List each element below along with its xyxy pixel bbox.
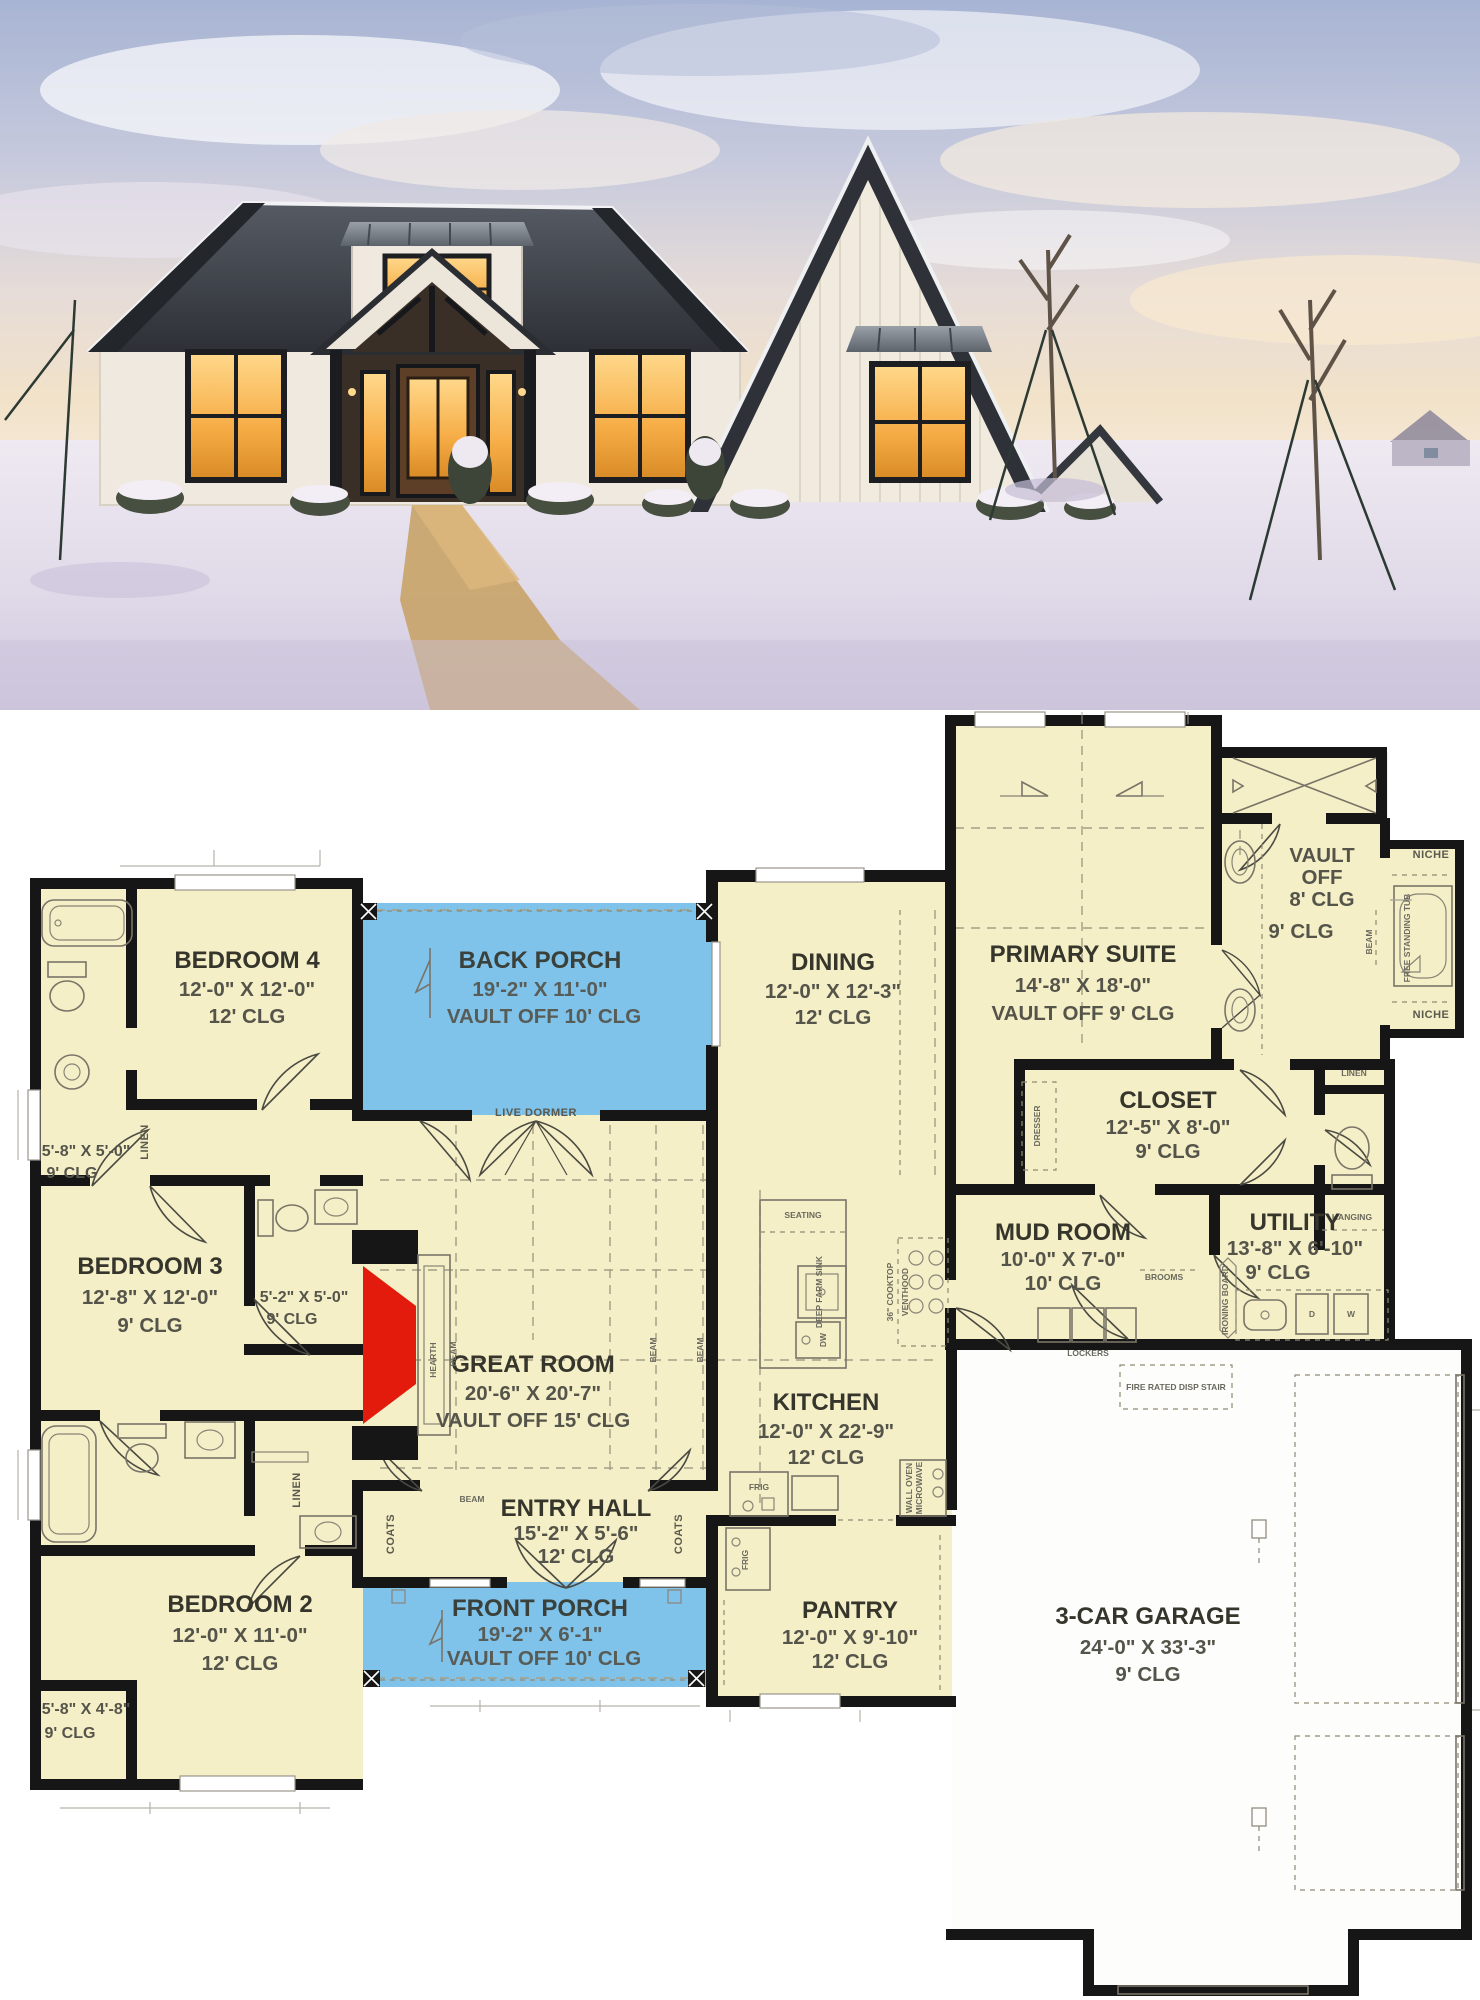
label-coats-right: COATS (673, 1514, 685, 1554)
label-beam-1: BEAM (448, 1341, 458, 1366)
svg-text:20'-6" X 20'-7": 20'-6" X 20'-7" (465, 1382, 601, 1405)
svg-text:12'-5" X 8'-0": 12'-5" X 8'-0" (1106, 1116, 1231, 1139)
label-niche-2: NICHE (1413, 1009, 1450, 1021)
svg-text:VAULT OFF 15' CLG: VAULT OFF 15' CLG (436, 1409, 630, 1432)
svg-text:CLOSET: CLOSET (1119, 1087, 1217, 1114)
sidelight-right (488, 372, 514, 494)
svg-text:15'-2" X 5'-6": 15'-2" X 5'-6" (514, 1522, 639, 1545)
label-dryer: D (1309, 1309, 1315, 1319)
svg-text:9' CLG: 9' CLG (45, 1725, 96, 1742)
svg-text:VAULT OFF 10' CLG: VAULT OFF 10' CLG (447, 1005, 641, 1028)
svg-text:9' CLG: 9' CLG (1135, 1140, 1200, 1163)
label-farm-sink: DEEP FARM SINK (814, 1255, 824, 1328)
room-fills (35, 720, 1467, 1991)
label-beam-tub: BEAM (1364, 929, 1374, 954)
svg-text:GREAT ROOM: GREAT ROOM (451, 1351, 615, 1378)
label-fire-stair: FIRE RATED DISP STAIR (1126, 1382, 1226, 1392)
svg-text:13'-8" X 6'-10": 13'-8" X 6'-10" (1227, 1237, 1363, 1260)
label-niche-1: NICHE (1413, 849, 1450, 861)
label-great-room: GREAT ROOM 20'-6" X 20'-7" VAULT OFF 15'… (436, 1351, 630, 1432)
svg-text:10'-0" X 7'-0": 10'-0" X 7'-0" (1001, 1248, 1126, 1271)
svg-text:12' CLG: 12' CLG (209, 1005, 286, 1028)
label-frig-2: FRIG (740, 1549, 750, 1570)
svg-text:8' CLG: 8' CLG (1289, 888, 1354, 911)
svg-text:BACK PORCH: BACK PORCH (459, 947, 622, 974)
svg-text:12' CLG: 12' CLG (788, 1446, 865, 1469)
svg-text:9' CLG: 9' CLG (117, 1314, 182, 1337)
svg-text:24'-0" X 33'-3": 24'-0" X 33'-3" (1080, 1636, 1216, 1659)
svg-text:5'-8" X 4'-8": 5'-8" X 4'-8" (42, 1701, 131, 1718)
svg-text:MUD ROOM: MUD ROOM (995, 1219, 1131, 1246)
label-venthood: VENTHOOD (900, 1268, 910, 1316)
label-live-dormer: LIVE DORMER (495, 1107, 577, 1119)
svg-text:9' CLG: 9' CLG (1115, 1663, 1180, 1686)
svg-text:12' CLG: 12' CLG (538, 1545, 615, 1568)
svg-text:12' CLG: 12' CLG (795, 1006, 872, 1029)
label-seating: SEATING (784, 1210, 822, 1220)
label-coats-left: COATS (385, 1514, 397, 1554)
label-wall-oven: WALL OVEN (904, 1463, 914, 1513)
svg-text:BEDROOM 3: BEDROOM 3 (77, 1253, 222, 1280)
label-lockers: LOCKERS (1067, 1348, 1109, 1358)
svg-text:BEDROOM 2: BEDROOM 2 (167, 1591, 312, 1618)
svg-text:12'-0" X 22'-9": 12'-0" X 22'-9" (758, 1420, 894, 1443)
svg-text:10' CLG: 10' CLG (1025, 1272, 1102, 1295)
svg-text:5'-2" X 5'-0": 5'-2" X 5'-0" (260, 1289, 349, 1306)
label-dw: DW (818, 1332, 828, 1347)
svg-text:12'-0" X 12'-3": 12'-0" X 12'-3" (765, 980, 901, 1003)
svg-text:VAULT OFF 9' CLG: VAULT OFF 9' CLG (992, 1002, 1175, 1025)
label-hearth: HEARTH (428, 1342, 438, 1377)
svg-text:12'-0" X 12'-0": 12'-0" X 12'-0" (179, 978, 315, 1001)
svg-text:19'-2" X 11'-0": 19'-2" X 11'-0" (472, 978, 607, 1001)
label-free-tub: FREE STANDING TUB (1402, 894, 1412, 983)
svg-text:VAULT: VAULT (1289, 844, 1355, 867)
svg-text:12' CLG: 12' CLG (812, 1650, 889, 1673)
svg-text:19'-2" X 6'-1": 19'-2" X 6'-1" (478, 1623, 603, 1646)
svg-text:BEDROOM 4: BEDROOM 4 (174, 947, 320, 974)
label-brooms: BROOMS (1145, 1272, 1184, 1282)
label-beam-2: BEAM (648, 1337, 658, 1362)
label-washer: W (1347, 1309, 1356, 1319)
svg-text:12'-8" X 12'-0": 12'-8" X 12'-0" (82, 1286, 218, 1309)
label-ironing: IRONING BOARD (1220, 1265, 1230, 1335)
label-microwave: MICROWAVE (914, 1461, 924, 1514)
window-right (592, 352, 688, 480)
label-frig-1: FRIG (749, 1482, 770, 1492)
sidelight-left (362, 372, 388, 494)
svg-text:DINING: DINING (791, 949, 875, 976)
svg-text:9' CLG: 9' CLG (1268, 920, 1333, 943)
svg-text:9' CLG: 9' CLG (267, 1311, 318, 1328)
label-dresser: DRESSER (1032, 1105, 1042, 1146)
house-exterior-photo (0, 0, 1480, 710)
svg-text:5'-8" X 5'-0": 5'-8" X 5'-0" (42, 1143, 131, 1160)
label-beam-entry: BEAM (459, 1494, 484, 1504)
svg-text:9' CLG: 9' CLG (1245, 1261, 1310, 1284)
svg-text:9' CLG: 9' CLG (47, 1165, 98, 1182)
label-cooktop: 36" COOKTOP (885, 1262, 895, 1321)
svg-text:14'-8" X 18'-0": 14'-8" X 18'-0" (1015, 974, 1151, 997)
svg-text:12'-0" X 9'-10": 12'-0" X 9'-10" (782, 1626, 918, 1649)
label-beam-3: BEAM (695, 1337, 705, 1362)
svg-text:OFF: OFF (1302, 866, 1343, 889)
svg-text:ENTRY HALL: ENTRY HALL (501, 1495, 652, 1522)
label-linen-1: LINEN (139, 1124, 151, 1160)
svg-text:12' CLG: 12' CLG (202, 1652, 279, 1675)
floor-plan: BEDROOM 4 12'-0" X 12'-0" 12' CLG 5'-8" … (0, 710, 1480, 2000)
window-left (188, 352, 284, 480)
svg-text:3-CAR GARAGE: 3-CAR GARAGE (1055, 1603, 1240, 1630)
svg-text:UTILITY: UTILITY (1250, 1209, 1341, 1236)
svg-text:12'-0" X 11'-0": 12'-0" X 11'-0" (172, 1624, 307, 1647)
label-linen-2: LINEN (1341, 1068, 1367, 1078)
pinterest-style-house-plan-image: BEDROOM 4 12'-0" X 12'-0" 12' CLG 5'-8" … (0, 0, 1480, 2000)
label-primary-suite: PRIMARY SUITE 14'-8" X 18'-0" VAULT OFF … (990, 941, 1177, 1025)
svg-text:PRIMARY SUITE: PRIMARY SUITE (990, 941, 1177, 968)
svg-text:PANTRY: PANTRY (802, 1597, 898, 1624)
svg-text:KITCHEN: KITCHEN (773, 1389, 880, 1416)
svg-text:VAULT OFF 10' CLG: VAULT OFF 10' CLG (447, 1647, 641, 1670)
label-linen-3: LINEN (291, 1472, 303, 1508)
svg-text:FRONT PORCH: FRONT PORCH (452, 1595, 628, 1622)
